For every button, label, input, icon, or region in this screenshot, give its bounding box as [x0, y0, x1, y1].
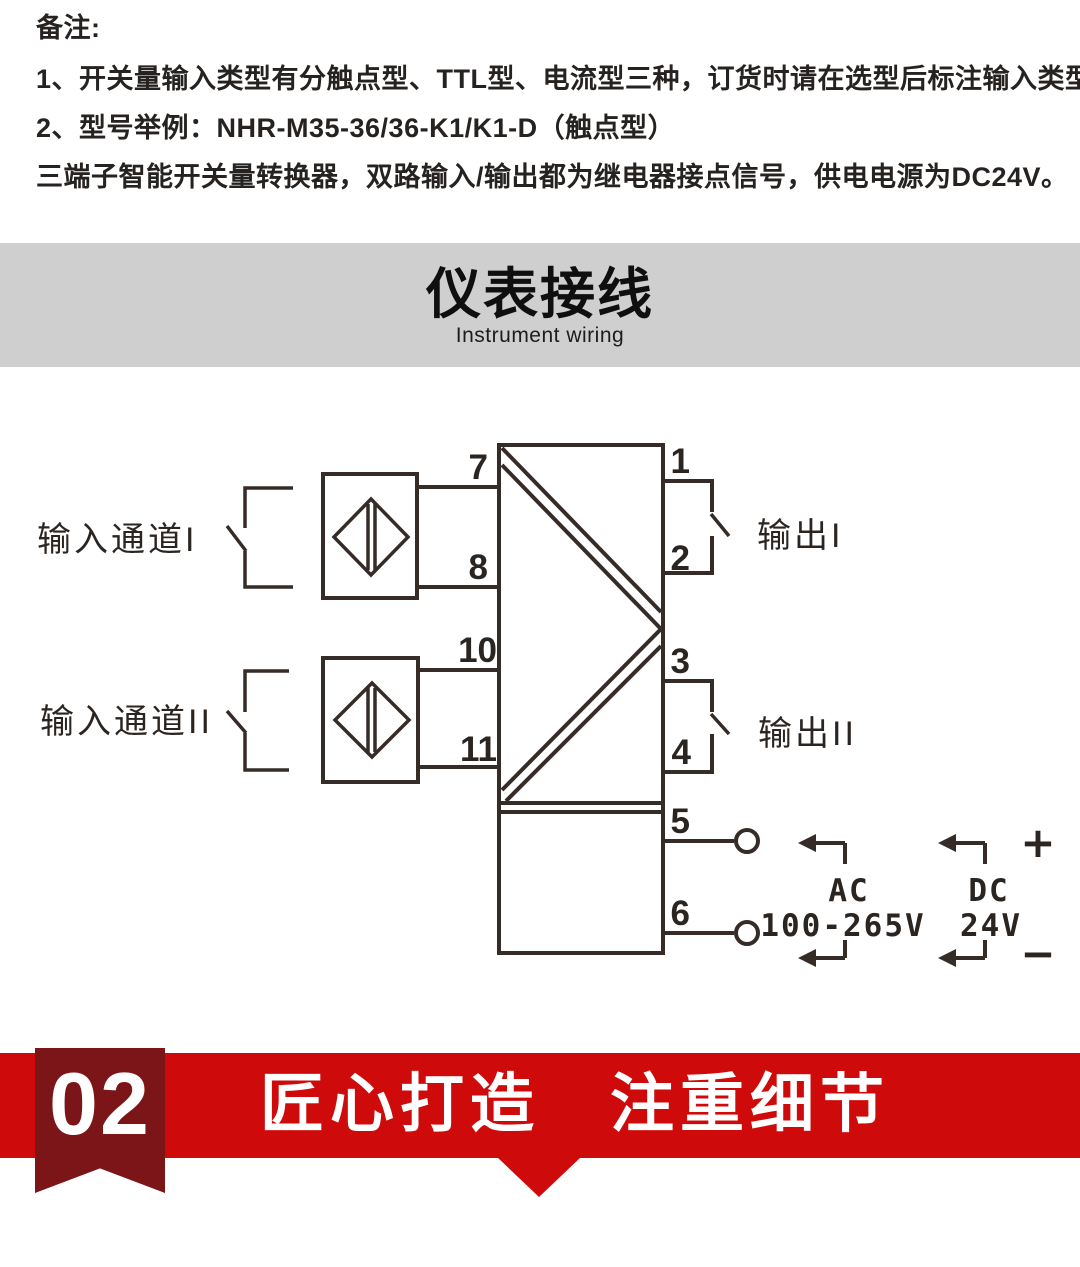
section-title: 仪表接线 — [426, 265, 654, 323]
polarity-minus-sign: − — [1020, 929, 1055, 978]
power-module-body — [499, 803, 663, 953]
footer-section-number: 02 — [35, 1056, 165, 1152]
terminal-10-label: 10 — [458, 631, 497, 670]
relay-1-top-contact — [663, 481, 712, 512]
note-line-1: 1、开关量输入类型有分触点型、TTL型、电流型三种，订货时请在选型后标注输入类型… — [36, 57, 1080, 96]
isolation-diagonal-upper-2 — [502, 465, 661, 629]
terminal-2-label: 2 — [671, 539, 690, 578]
sensor-diamond-1 — [334, 499, 408, 575]
isolation-diagonal-upper-1 — [502, 448, 661, 612]
terminal-3-label: 3 — [671, 642, 690, 681]
terminal-6-label: 6 — [671, 894, 690, 933]
isolation-diagonal-lower-2 — [506, 646, 661, 801]
relay-2-top-contact — [663, 681, 712, 712]
wiring-diagram-svg: 输入通道I 7 8 输入通道II — [0, 400, 1080, 1030]
ac-label: AC — [828, 873, 869, 909]
relay-1-blade — [711, 514, 729, 536]
output-1-label: 输出I — [757, 517, 843, 555]
footer-section-ribbon: 02 — [35, 1048, 165, 1193]
input-switch-2-top — [245, 671, 289, 712]
section-subtitle: Instrument wiring — [456, 323, 624, 349]
output-1-group: 1 2 输出I — [663, 442, 843, 578]
notes-heading: 备注: — [36, 6, 101, 45]
terminal-4-label: 4 — [672, 733, 692, 772]
input-switch-2-bottom — [245, 733, 289, 770]
input-channel-2-label: 输入通道II — [40, 703, 213, 741]
page: 备注: 1、开关量输入类型有分触点型、TTL型、电流型三种，订货时请在选型后标注… — [0, 0, 1080, 1267]
input-switch-2-blade — [227, 711, 246, 733]
isolation-diagonal-lower-1 — [502, 629, 661, 790]
ac-top-arrowhead-icon — [798, 834, 816, 852]
power-terminal-5-circle — [736, 830, 758, 852]
wiring-diagram: 输入通道I 7 8 输入通道II — [0, 400, 1080, 1030]
input-channel-2-group: 输入通道II 10 11 — [40, 631, 499, 782]
ac-voltage-range: 100-265V — [760, 908, 925, 944]
dc-top-arrowhead-icon — [938, 834, 956, 852]
terminal-8-label: 8 — [469, 548, 488, 587]
terminal-11-label: 11 — [460, 730, 497, 769]
note-line-2: 2、型号举例：NHR-M35-36/36-K1/K1-D（触点型） — [36, 106, 675, 145]
dc-voltage-value: 24V — [960, 908, 1022, 944]
output-2-label: 输出II — [758, 715, 857, 753]
polarity-plus-sign: + — [1020, 818, 1055, 867]
power-terminal-6-circle — [736, 922, 758, 944]
input-switch-1-bottom — [245, 551, 293, 587]
section-banner: 仪表接线 Instrument wiring — [0, 243, 1080, 367]
dc-label: DC — [968, 873, 1009, 909]
footer-banner-pointer-icon — [497, 1157, 581, 1197]
input-channel-1-group: 输入通道I 7 8 — [37, 448, 499, 598]
ac-bottom-arrowhead-icon — [798, 949, 816, 967]
terminal-7-label: 7 — [469, 448, 488, 487]
power-supply-group: 5 6 AC 100-265V DC — [663, 802, 1056, 978]
output-2-group: 3 4 输出II — [663, 642, 857, 772]
terminal-5-label: 5 — [671, 802, 690, 841]
note-line-3: 三端子智能开关量转换器，双路输入/输出都为继电器接点信号，供电电源为DC24V。 — [36, 155, 1069, 194]
terminal-1-label: 1 — [671, 442, 690, 481]
isolator-body — [499, 445, 663, 803]
notes-section: 备注: 1、开关量输入类型有分触点型、TTL型、电流型三种，订货时请在选型后标注… — [0, 0, 1080, 243]
input-switch-1-blade — [227, 526, 246, 551]
isolator-block — [499, 445, 663, 953]
dc-bottom-arrowhead-icon — [938, 949, 956, 967]
relay-2-blade — [711, 714, 729, 734]
input-switch-1-top — [245, 488, 293, 528]
input-channel-1-label: 输入通道I — [37, 521, 197, 559]
sensor-diamond-2 — [335, 683, 409, 757]
